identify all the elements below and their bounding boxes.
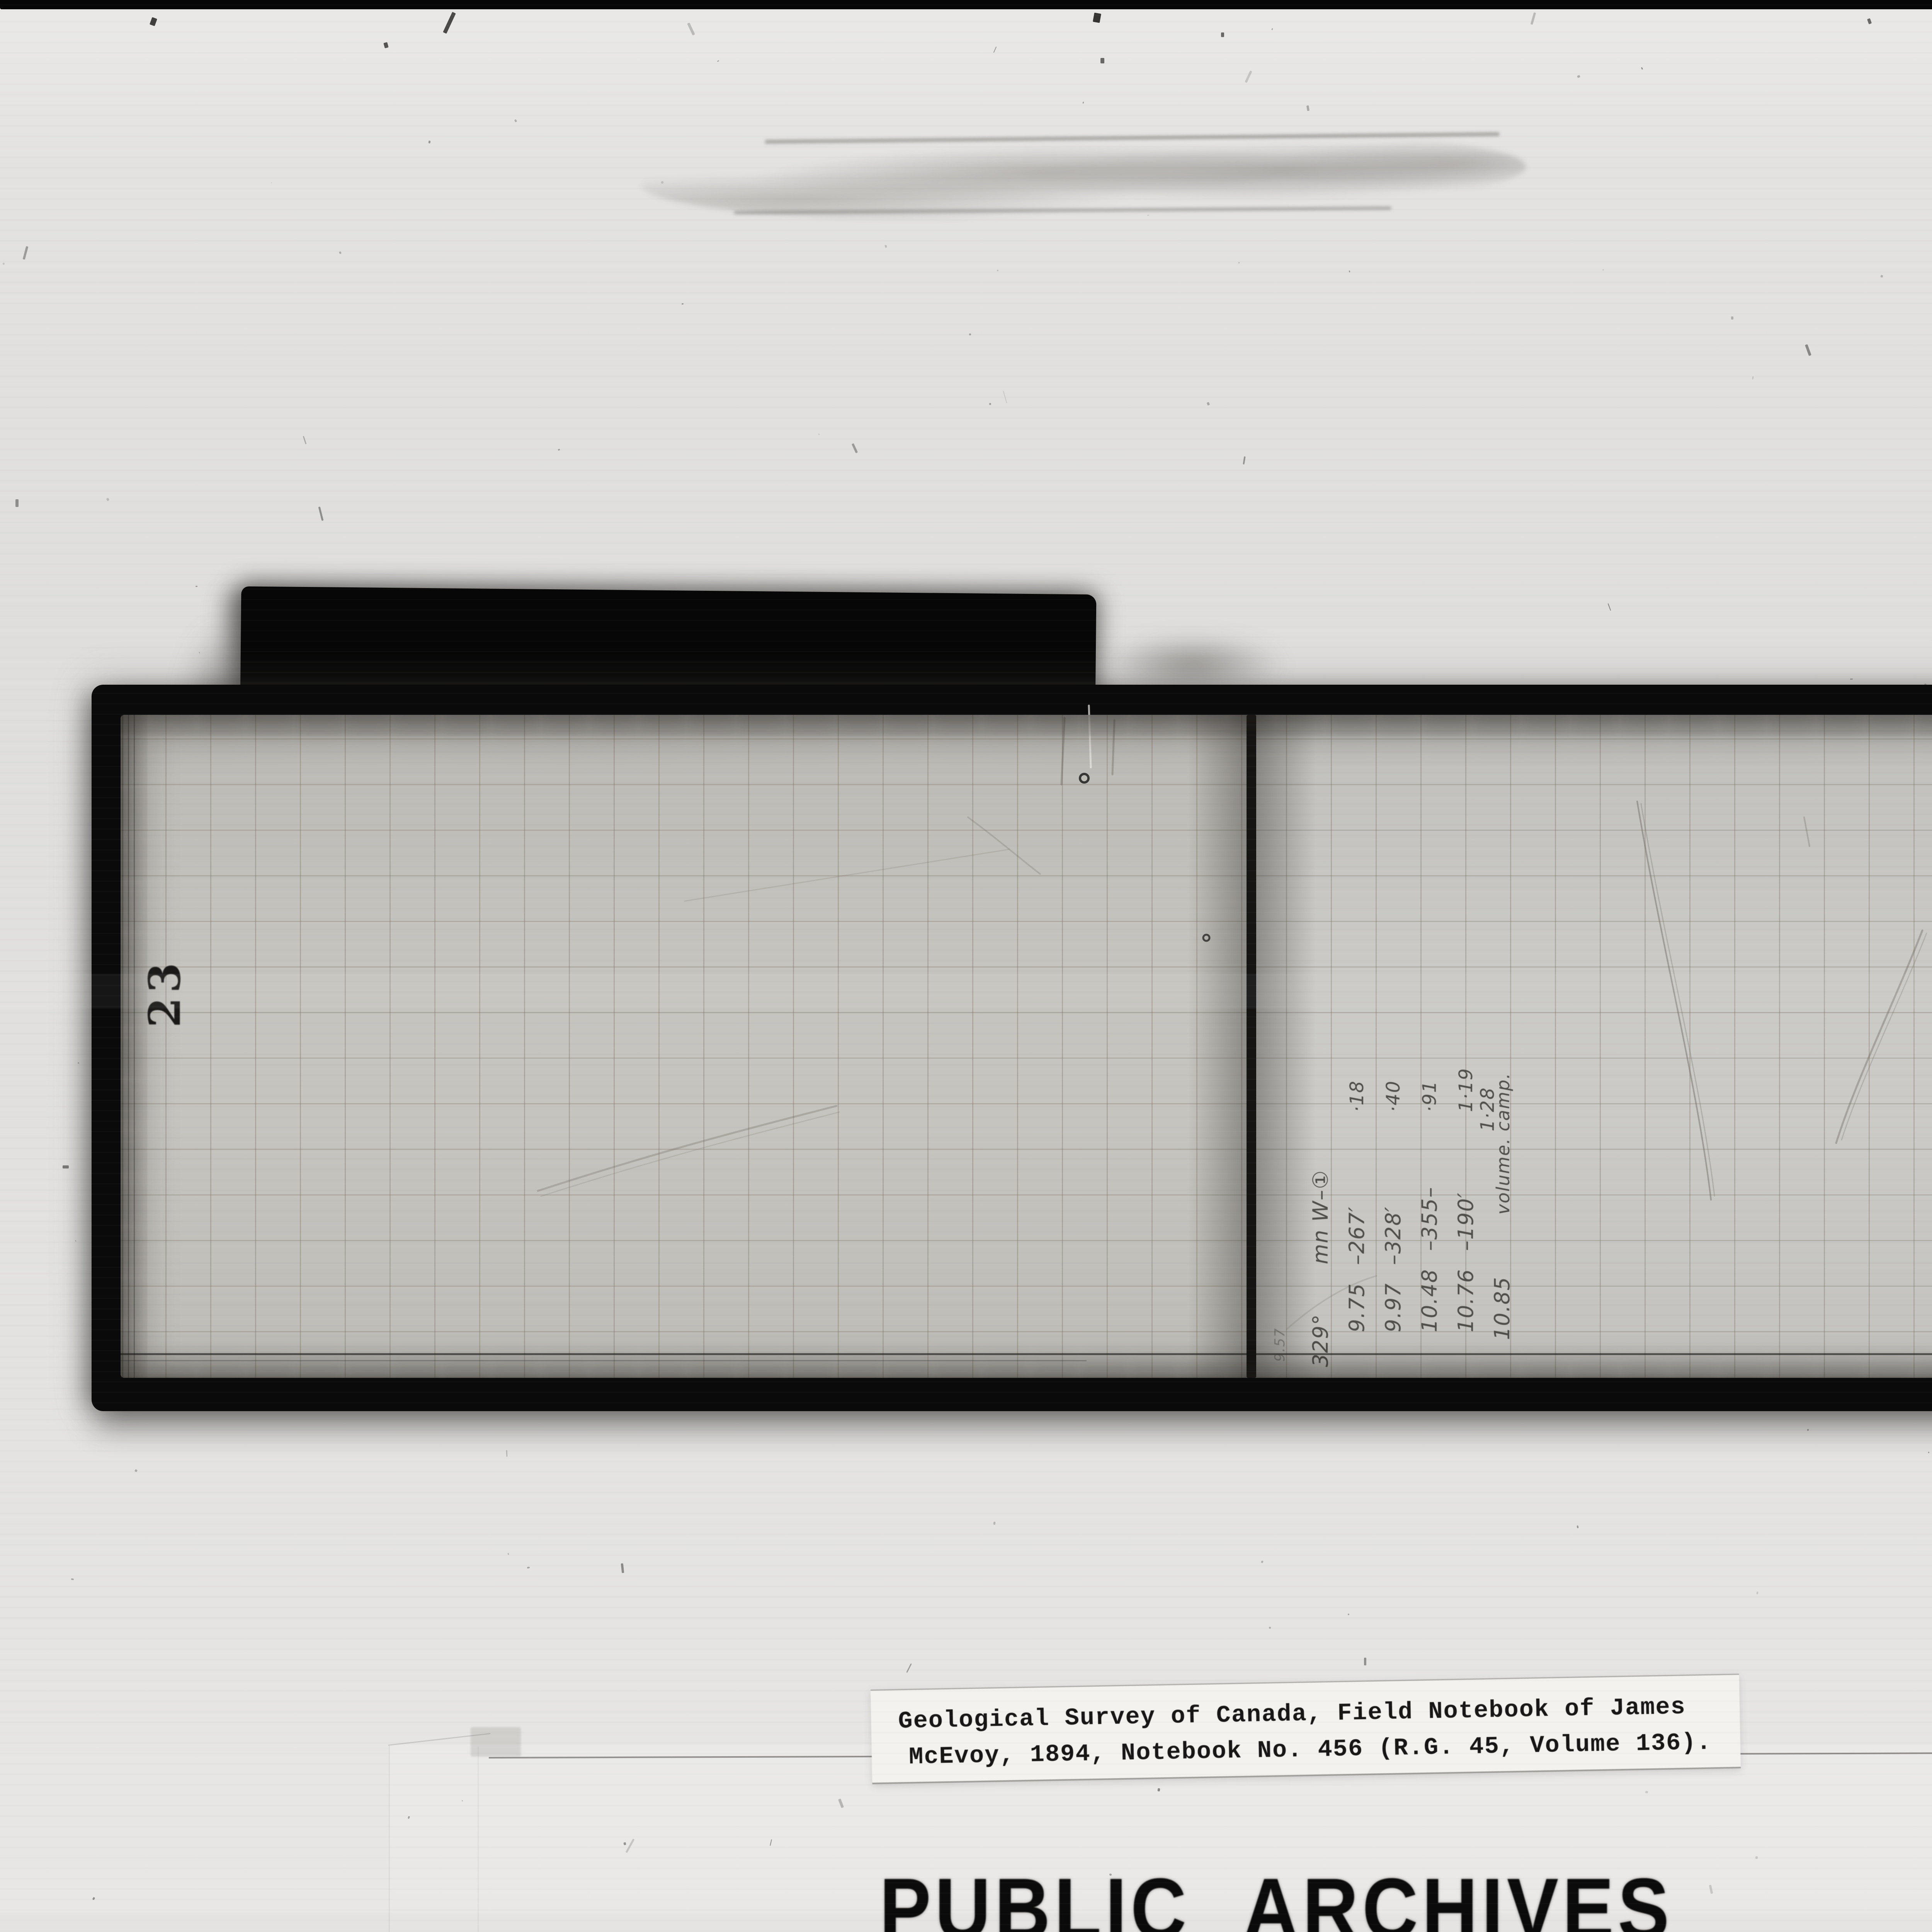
handwriting-line: 10.85volume. camp.1·28: [1490, 1019, 1526, 1367]
handwriting-text: 10.48: [1417, 1269, 1442, 1332]
handwriting-text: –355–: [1417, 1186, 1442, 1251]
handwriting-text: ·91: [1419, 1080, 1440, 1112]
pencil-scratches: [0, 0, 1932, 1932]
film-edge-strip-top: [0, 0, 1932, 9]
handwriting-text: mn W–①: [1308, 1170, 1333, 1264]
handwriting-text: –328′: [1381, 1206, 1405, 1265]
field-notes-handwriting: 9.57 329°mn W–① 9.75–267′·18 9.97–328′·4…: [1272, 1019, 1527, 1367]
handwriting-line: 329°mn W–①: [1308, 1019, 1345, 1367]
handwriting-text: –190′: [1454, 1192, 1478, 1251]
handwriting-text: ·40: [1383, 1080, 1404, 1112]
handwriting-text: 10.76: [1454, 1269, 1478, 1332]
handwriting-line: 9.97–328′·40: [1381, 1019, 1417, 1367]
handwriting-text: ·18: [1346, 1080, 1368, 1112]
scan-band: [0, 974, 1932, 1009]
handwriting-text: –267′: [1345, 1206, 1369, 1265]
handwriting-text: 9.75: [1345, 1283, 1369, 1332]
handwriting-text: 9.97: [1381, 1283, 1405, 1332]
handwriting-line: 10.76–190′1·19: [1454, 1019, 1490, 1367]
handwriting-text: 1·28: [1477, 1087, 1498, 1131]
microfilm-scan: 23 51 9.57 329°mn W–① 9.75–267′·18 9.97–…: [0, 0, 1932, 1932]
handwriting-text: 329°: [1308, 1314, 1333, 1367]
handwriting-text: 10.85: [1490, 1276, 1514, 1340]
handwriting-line: 10.48–355–·91: [1417, 1019, 1454, 1367]
handwriting-line: 9.75–267′·18: [1345, 1019, 1381, 1367]
scan-band: [0, 1913, 1932, 1932]
handwriting-text: 9.57: [1272, 1328, 1288, 1362]
handwriting-line: 9.57: [1272, 1019, 1308, 1367]
handwriting-text: 1·19: [1455, 1068, 1477, 1112]
